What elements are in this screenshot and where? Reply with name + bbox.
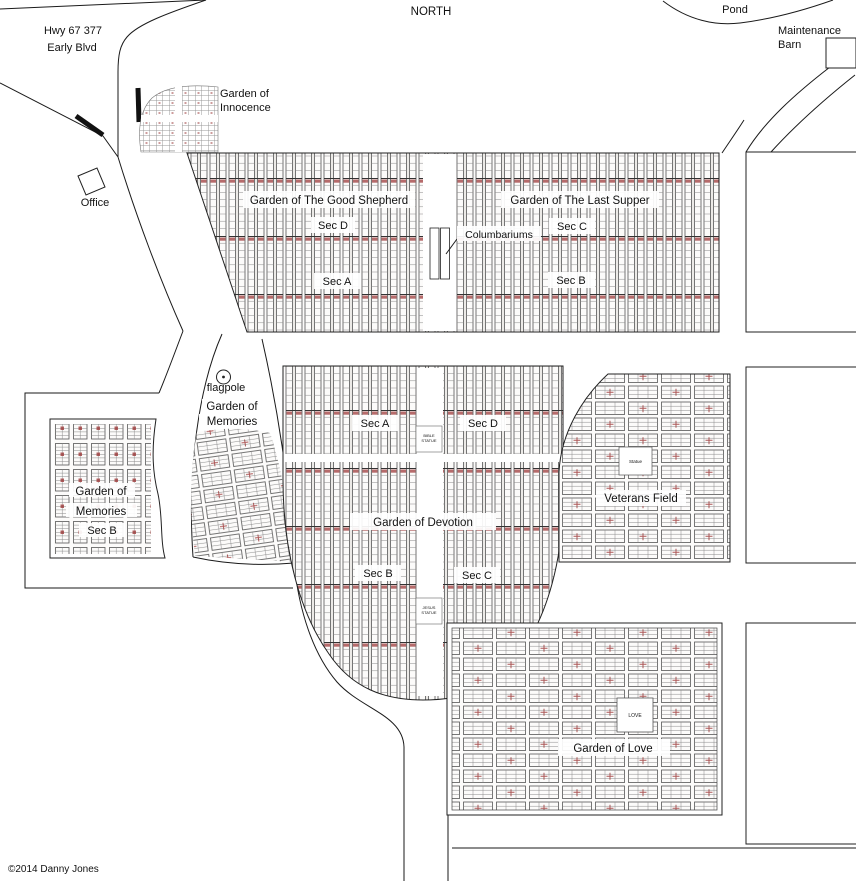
devotion-name: Garden of Devotion	[373, 517, 473, 529]
devotion-sec-c: Sec C	[462, 570, 492, 582]
east-parcels	[746, 152, 856, 844]
section-garden-of-innocence	[139, 86, 218, 152]
last-supper-name: Garden of The Last Supper	[510, 195, 649, 207]
devotion-sec-d: Sec D	[468, 418, 498, 430]
entrance-gate-mark-west	[76, 116, 103, 135]
innocence-label-2: Innocence	[220, 102, 271, 114]
east-parcel-1	[746, 152, 856, 332]
bible-statue-marker: BIBLE STATUE	[416, 426, 442, 452]
north-center-aisle	[423, 154, 456, 331]
road-highway-north-line	[0, 0, 206, 9]
garden-of-love-label-group: Garden of Love	[558, 739, 670, 756]
memories-label-1: Garden of	[206, 401, 258, 413]
section-veterans-field: Statue	[559, 374, 730, 562]
north-label: NORTH	[411, 6, 452, 18]
last-supper-sec-b: Sec B	[556, 275, 585, 287]
veterans-field-label-group: Veterans Field	[596, 490, 686, 506]
pond-label: Pond	[722, 4, 748, 16]
jesus-statue-label-2: STATUE	[421, 610, 437, 615]
cemetery-map: BIBLE STATUE JESUS STATUE Statue LOVE NO…	[0, 0, 856, 881]
road-entrance-west-edge	[118, 157, 183, 331]
devotion-sec-b: Sec B	[363, 568, 392, 580]
memories-label-2: Memories	[207, 416, 258, 428]
devotion-center-aisle	[417, 368, 443, 696]
pond-shoreline	[663, 0, 833, 24]
columbariums-label-group: Columbariums	[457, 226, 541, 241]
good-shepherd-name: Garden of The Good Shepherd	[250, 195, 408, 207]
highway-label-2: Early Blvd	[47, 42, 97, 54]
maintenance-barn-label-1: Maintenance	[778, 25, 841, 37]
columbarium-building-2	[441, 228, 450, 279]
road-barn-curve-1	[746, 67, 830, 152]
good-shepherd-sec-d: Sec D	[318, 220, 348, 232]
flagpole-dot-icon	[222, 376, 225, 379]
columbarium-building-1	[430, 228, 439, 279]
veterans-statue-marker: Statue	[619, 447, 652, 475]
good-shepherd-sec-a: Sec A	[323, 276, 352, 288]
office-label: Office	[81, 197, 110, 209]
love-monument-label: LOVE	[628, 713, 642, 719]
east-parcel-3	[746, 623, 856, 844]
office-building	[78, 168, 105, 195]
jesus-statue-marker: JESUS STATUE	[416, 598, 442, 624]
section-garden-of-love: LOVE	[447, 623, 722, 815]
memories-fan-labels: Garden of Memories	[199, 399, 265, 428]
road-highway-south-line	[0, 83, 118, 157]
east-parcel-2	[746, 367, 856, 563]
maintenance-barn-label-2: Barn	[778, 39, 801, 51]
section-memories-fan	[191, 429, 293, 562]
road-fork-left	[159, 331, 183, 393]
road-barn-curve-2	[771, 75, 855, 152]
entrance-gate-mark-east	[138, 88, 139, 122]
section-north-gardens	[187, 153, 719, 332]
last-supper-sec-c: Sec C	[557, 221, 587, 233]
road-corner-curve	[722, 120, 744, 153]
highway-label-1: Hwy 67 377	[44, 25, 102, 37]
devotion-cross-aisle	[284, 454, 562, 462]
copyright-text: ©2014 Danny Jones	[8, 864, 99, 875]
memories-sec-b-label-1: Garden of	[75, 486, 127, 498]
innocence-label-1: Garden of	[220, 88, 270, 100]
bible-statue-label-2: STATUE	[421, 438, 437, 443]
columbariums-label: Columbariums	[465, 229, 533, 241]
love-monument-marker: LOVE	[617, 698, 653, 732]
flagpole-label: flagpole	[207, 382, 246, 394]
memories-sec-b-label-2: Memories	[76, 506, 127, 518]
memories-sec-b-label-3: Sec B	[87, 525, 116, 537]
garden-of-love-name: Garden of Love	[573, 743, 652, 755]
veterans-field-name: Veterans Field	[604, 493, 678, 505]
veterans-statue-label: Statue	[629, 459, 643, 464]
devotion-sec-a: Sec A	[361, 418, 390, 430]
maintenance-barn-building	[826, 38, 856, 68]
